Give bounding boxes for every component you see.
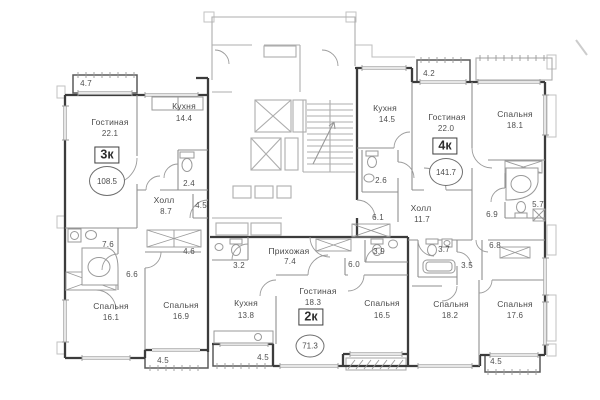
floor-plan-canvas: 4.7 Гостиная 22.1 3к 108.5 Кухня 14.4 2.… [0, 0, 600, 400]
room-label-bedroom2-4k: Спальня [433, 300, 469, 309]
room-label-entry-2k: Прихожая [269, 247, 310, 256]
room-area-bedroom3-4k: 17.6 [507, 312, 523, 320]
balcony-area-bottom-4k: 4.5 [490, 358, 502, 366]
room-area-bedroom2-3k: 16.9 [173, 313, 189, 321]
room-label-living-4k: Гостиная [428, 113, 465, 122]
apartment-type-badge-2k[interactable]: 2к [298, 309, 323, 326]
room-label-kitchen-3k: Кухня [172, 102, 196, 111]
railing-ticks [78, 55, 544, 375]
room-area-bath-4k: 5.7 [532, 201, 544, 209]
room-area-bedroom-2k: 16.5 [374, 312, 390, 320]
room-area-bedroom1-3k: 16.1 [103, 314, 119, 322]
apartment-total-area-3k[interactable]: 108.5 [89, 166, 125, 196]
room-area-corridor-3k: 6.6 [126, 271, 138, 279]
room-area-bath-2k: 3.2 [233, 262, 245, 270]
elevator-shaft-icon [251, 100, 306, 170]
room-label-bedroom2-3k: Спальня [163, 301, 199, 310]
room-area-wc-3k: 2.4 [183, 180, 195, 188]
room-area-storage1-4k: 6.8 [489, 242, 501, 250]
north-mark [576, 40, 587, 55]
room-area-corridor1-4k: 6.1 [372, 214, 384, 222]
staircase-icon [303, 100, 355, 172]
room-area-wc-2k: 3.9 [373, 248, 385, 256]
room-area-wardrobe-3k: 4.6 [183, 248, 195, 256]
toilet-icon [180, 152, 194, 172]
balcony-area-2k: 4.5 [257, 354, 269, 362]
room-area-storage-3k: 4.5 [195, 202, 207, 210]
balcony-area: 4.7 [80, 80, 92, 88]
room-area-living-2k: 18.3 [305, 299, 321, 307]
room-area-bedroom2-4k: 18.2 [442, 312, 458, 320]
room-area-storage2-4k: 3.5 [461, 262, 473, 270]
room-area-corridor2-4k: 6.9 [486, 211, 498, 219]
balcony-area-bottom-3k: 4.5 [157, 357, 169, 365]
room-label-bedroom-2k: Спальня [364, 299, 400, 308]
room-label-living-2k: Гостиная [299, 287, 336, 296]
room-label-kitchen-4k: Кухня [373, 104, 397, 113]
room-label-hall-3k: Холл [154, 196, 175, 205]
room-area-wc2-4k: 3.7 [438, 246, 450, 254]
room-area-living-3k: 22.1 [102, 130, 118, 138]
apartment-type-badge-4k[interactable]: 4к [432, 138, 457, 155]
kitchen-counter-icon [214, 331, 273, 343]
room-label-bedroom3-4k: Спальня [497, 300, 533, 309]
room-area-bath-3k: 7.6 [102, 241, 114, 249]
bathtub-icon [68, 229, 118, 285]
balcony-area-top-4k: 4.2 [423, 70, 435, 78]
room-label-living-3k: Гостиная [91, 118, 128, 127]
room-area-hall-3k: 8.7 [160, 208, 172, 216]
apartment-total-area-2k[interactable]: 71.3 [296, 335, 325, 358]
room-area-living-4k: 22.0 [438, 125, 454, 133]
apartment-total-area-4k[interactable]: 141.7 [429, 158, 463, 186]
room-area-kitchen-2k: 13.8 [238, 312, 254, 320]
apartment-type-badge-3k[interactable]: 3к [94, 147, 119, 164]
room-area-entry-2k: 7.4 [284, 258, 296, 266]
room-label-hall-4k: Холл [411, 204, 432, 213]
room-label-kitchen-2k: Кухня [234, 299, 258, 308]
room-label-bedroom1-3k: Спальня [93, 302, 129, 311]
room-area-corridor-2k: 6.0 [348, 261, 360, 269]
room-label-bedroom1-4k: Спальня [497, 110, 533, 119]
room-area-bedroom1-4k: 18.1 [507, 122, 523, 130]
room-area-kitchen-4k: 14.5 [379, 116, 395, 124]
building-core [212, 17, 355, 235]
room-area-kitchen-3k: 14.4 [176, 115, 192, 123]
room-area-wc1-4k: 2.6 [375, 177, 387, 185]
room-area-hall-4k: 11.7 [414, 216, 430, 224]
